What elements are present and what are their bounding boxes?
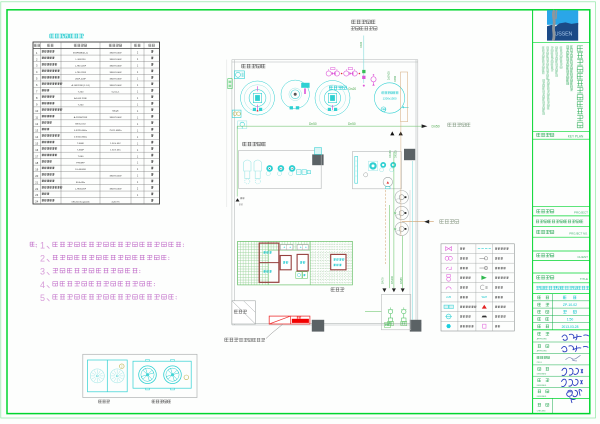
svg-text:DN70: DN70 (381, 277, 385, 284)
svg-text:T-200: T-200 (78, 91, 84, 93)
svg-text:APPROVED: APPROVED (537, 350, 548, 353)
svg-text:0.5/220-660a: 0.5/220-660a (74, 137, 88, 139)
svg-text:DESIGNED: DESIGNED (537, 374, 547, 376)
svg-text:DN40: DN40 (360, 41, 363, 48)
svg-text:80.4x99a: 80.4x99a (76, 182, 86, 184)
svg-text:TITLE: TITLE (580, 277, 588, 281)
svg-text:DL-660/S8: DL-660/S8 (75, 169, 86, 171)
svg-text:L-780 220F: L-780 220F (75, 72, 87, 74)
svg-text:2013-03-28: 2013-03-28 (562, 325, 579, 329)
svg-text:380V/3.0kW: 380V/3.0kW (110, 117, 123, 119)
svg-text:3: 3 (40, 267, 45, 277)
svg-text:DN100: DN100 (395, 150, 398, 158)
svg-text:380V/4.0kW: 380V/4.0kW (110, 72, 123, 74)
svg-text:PROJECT: PROJECT (574, 210, 588, 214)
svg-text:1200x1500: 1200x1500 (383, 97, 397, 101)
svg-text:Dn20: Dn20 (349, 87, 357, 91)
svg-text:380V/4.0kW: 380V/4.0kW (110, 188, 123, 190)
svg-text:L-780 220F: L-780 220F (75, 65, 87, 67)
svg-text:CHECKED: CHECKED (537, 411, 546, 413)
svg-text:380V/3.0kW: 380V/3.0kW (110, 78, 123, 80)
svg-text:4=50 75: 4=50 75 (112, 201, 121, 203)
svg-text:BXG-0.8-II: BXG-0.8-II (75, 124, 86, 126)
svg-text:DESIGNED: DESIGNED (537, 396, 547, 398)
svg-text:APPROVED: APPROVED (537, 337, 548, 340)
svg-text:380V/3.0kW: 380V/3.0kW (110, 85, 123, 87)
svg-text:1.5L/h 45C: 1.5L/h 45C (110, 143, 121, 145)
svg-text:380V/3.0kW: 380V/3.0kW (110, 52, 123, 54)
svg-text:T-660F: T-660F (77, 143, 85, 145)
svg-text:75C/1.0MPa: 75C/1.0MPa (109, 130, 122, 132)
svg-text:Dn50: Dn50 (309, 122, 317, 126)
svg-text:DN100: DN100 (390, 275, 394, 284)
svg-text:2-25: 2-25 (446, 296, 451, 299)
svg-text:DN150: DN150 (389, 150, 392, 158)
svg-text:CLIENT: CLIENT (577, 255, 588, 259)
svg-text:2: 2 (40, 254, 45, 264)
svg-text:PH/ORP: PH/ORP (76, 163, 85, 165)
svg-text:DESIGNED: DESIGNED (537, 385, 547, 387)
svg-text:USSEN: USSEN (555, 32, 573, 38)
svg-text:DN50: DN50 (394, 75, 397, 82)
svg-text:PROJ.: PROJ. (537, 362, 543, 364)
svg-text:0.5/220-660a: 0.5/220-660a (74, 130, 88, 132)
svg-text:DN65: DN65 (399, 277, 403, 284)
svg-text:1: 1 (40, 240, 45, 250)
svg-text:A-220W/220F: A-220W/220F (74, 116, 88, 119)
svg-text:ZP-10-02: ZP-10-02 (563, 303, 577, 307)
svg-text:50kg/h: 50kg/h (112, 111, 119, 113)
svg-text:1.5L/h 45C: 1.5L/h 45C (110, 150, 121, 152)
svg-text:PROJECT NO.: PROJECT NO. (569, 232, 588, 236)
svg-text:WxH: WxH (482, 296, 488, 299)
svg-text:5=Cla-1: 5=Cla-1 (112, 91, 121, 93)
svg-text:4: 4 (40, 280, 45, 290)
svg-text:A-100F 220F: A-100F 220F (74, 97, 87, 100)
svg-text:T-660: T-660 (78, 156, 84, 158)
svg-text:380V/0.4kW: 380V/0.4kW (110, 175, 123, 177)
svg-text:380V/3.0kW: 380V/3.0kW (110, 65, 123, 67)
svg-text:Dn50: Dn50 (348, 122, 356, 126)
svg-text:KEY PLAN: KEY PLAN (568, 134, 584, 138)
svg-text:2xDN25: 2xDN25 (387, 71, 390, 80)
svg-text:Dn50: Dn50 (432, 125, 440, 129)
svg-text:0912x0.5Cap(4-8): 0912x0.5Cap(4-8) (72, 201, 90, 203)
svg-text:T-660F: T-660F (77, 150, 85, 152)
svg-text:65SFB480(1-1): 65SFB480(1-1) (73, 52, 88, 54)
svg-text:T-200: T-200 (78, 104, 84, 106)
svg-text:260F-220F: 260F-220F (75, 78, 86, 80)
svg-text:A-10F/220F(1-1-8): A-10F/220F(1-1-8) (71, 84, 89, 87)
svg-text:L-780/220F: L-780/220F (75, 188, 87, 190)
svg-text:1:50: 1:50 (567, 318, 574, 322)
svg-text:L-300/150: L-300/150 (76, 59, 87, 61)
svg-text:5: 5 (40, 293, 45, 303)
svg-text:380V/4.0kW: 380V/4.0kW (110, 59, 123, 61)
